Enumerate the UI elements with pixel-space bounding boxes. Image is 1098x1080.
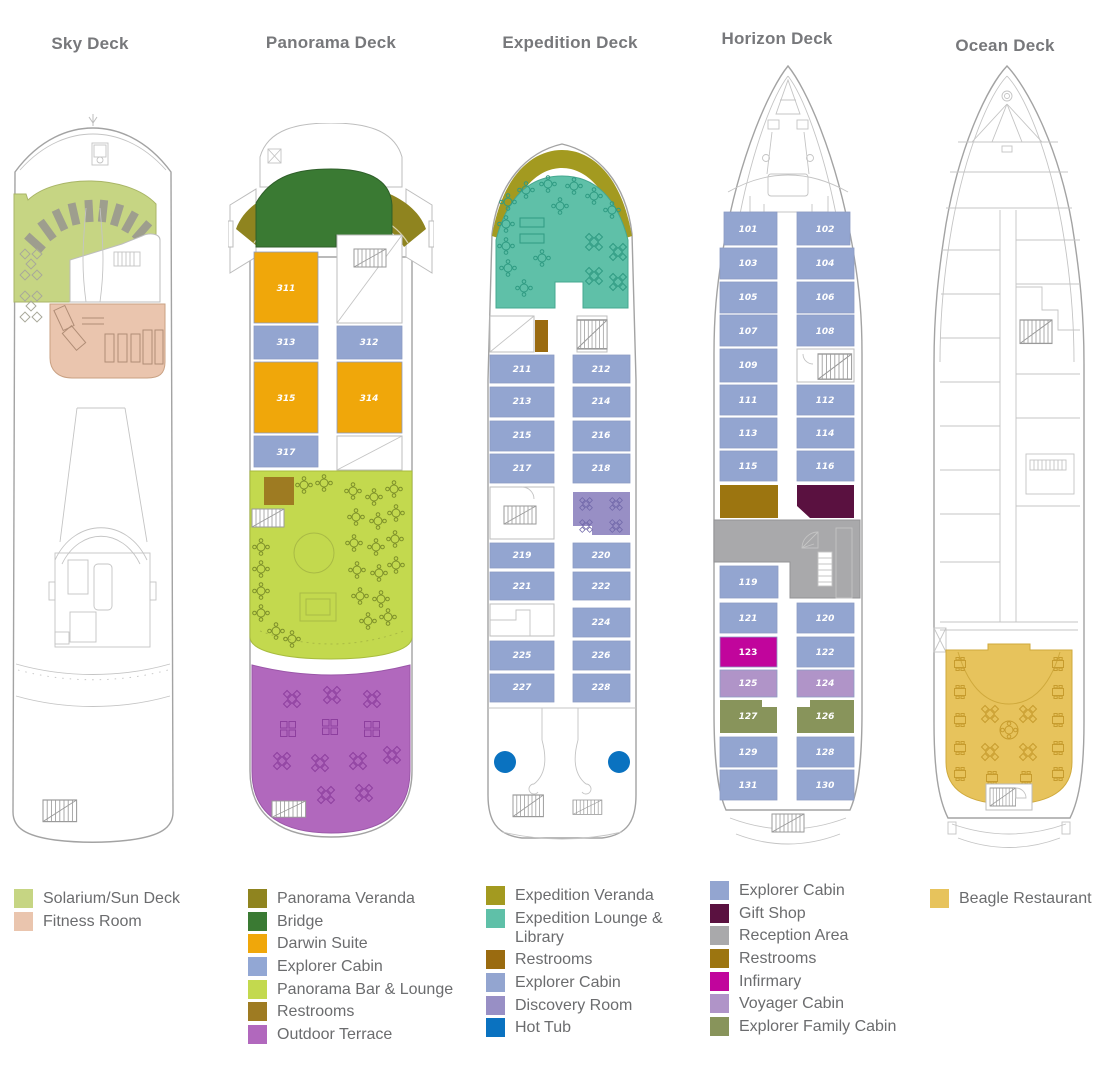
cabin-101-label: 101 xyxy=(739,225,758,235)
cabin-214-label: 214 xyxy=(592,397,611,407)
legend-label: Discovery Room xyxy=(515,996,632,1015)
stairs xyxy=(1020,320,1052,343)
legend-swatch xyxy=(248,957,267,976)
legend-item: Outdoor Terrace xyxy=(248,1025,453,1044)
legend-item: Voyager Cabin xyxy=(710,994,896,1013)
unnumbered-room xyxy=(490,604,554,636)
legend-swatch xyxy=(486,973,505,992)
legend-item: Beagle Restaurant xyxy=(930,889,1092,908)
legend-label: Restrooms xyxy=(515,950,592,969)
cabin-221-label: 221 xyxy=(513,582,532,592)
cabin-123-label: 123 xyxy=(739,648,758,658)
aft-stair-house xyxy=(986,784,1032,810)
legend-swatch xyxy=(710,994,729,1013)
cabin-220-label: 220 xyxy=(592,551,611,561)
legend-label: Bridge xyxy=(277,912,323,931)
legend-item: Explorer Cabin xyxy=(248,957,453,976)
cabin-314-label: 314 xyxy=(360,394,379,404)
legend-label: Beagle Restaurant xyxy=(959,889,1092,908)
legend-swatch xyxy=(248,889,267,908)
cabin-125-label: 125 xyxy=(739,679,758,689)
cabin-108-label: 108 xyxy=(816,327,835,337)
cabin-211-label: 211 xyxy=(513,365,532,375)
cabin-127-label: 127 xyxy=(739,712,759,722)
legend-label: Expedition Veranda xyxy=(515,886,654,905)
legend-swatch xyxy=(710,1017,729,1036)
horizon-deck-legend: Explorer Cabin Gift Shop Reception Area … xyxy=(710,881,896,1040)
cabin-124-label: 124 xyxy=(816,679,835,689)
stairs xyxy=(252,509,284,527)
cabin-311-label: 311 xyxy=(277,284,296,294)
legend-item: Explorer Family Cabin xyxy=(710,1017,896,1036)
legend-label: Hot Tub xyxy=(515,1018,571,1037)
restrooms-zone xyxy=(535,320,548,352)
cabin-224-label: 224 xyxy=(592,618,611,628)
sky-deck-plan xyxy=(10,112,176,847)
legend-label: Gift Shop xyxy=(739,904,806,923)
legend-item: Bridge xyxy=(248,912,453,931)
cabin-218-label: 218 xyxy=(592,464,611,474)
legend-swatch xyxy=(710,949,729,968)
sky-deck-legend: Solarium/Sun Deck Fitness Room xyxy=(14,889,180,934)
legend-swatch xyxy=(248,934,267,953)
legend-label: Explorer Cabin xyxy=(277,957,383,976)
legend-item: Restrooms xyxy=(248,1002,453,1021)
legend-swatch xyxy=(710,972,729,991)
cabin-120-label: 120 xyxy=(816,614,835,624)
cabin-317-label: 317 xyxy=(277,448,297,458)
cabin-104-label: 104 xyxy=(816,259,835,269)
legend-swatch xyxy=(486,1018,505,1037)
legend-label: Fitness Room xyxy=(43,912,142,931)
cabin-114-label: 114 xyxy=(816,429,835,439)
expedition-deck-plan: 211 213 215 217 219 221 225 227 212 214 … xyxy=(482,140,642,852)
legend-item: Explorer Cabin xyxy=(710,881,896,900)
legend-swatch xyxy=(710,926,729,945)
cabin-228-label: 228 xyxy=(592,683,611,693)
panorama-deck-legend: Panorama Veranda Bridge Darwin Suite Exp… xyxy=(248,889,453,1048)
legend-swatch xyxy=(248,1002,267,1021)
restrooms-zone xyxy=(720,485,778,518)
cabin-102-label: 102 xyxy=(816,225,835,235)
deck-title-sky: Sky Deck xyxy=(51,34,128,54)
legend-swatch xyxy=(486,886,505,905)
cabin-128-label: 128 xyxy=(816,748,835,758)
cabin-131-label: 131 xyxy=(739,781,758,791)
legend-swatch xyxy=(486,950,505,969)
ocean-deck-plan xyxy=(930,62,1088,874)
legend-item: Darwin Suite xyxy=(248,934,453,953)
cabin-315-label: 315 xyxy=(277,394,296,404)
cabin-122-label: 122 xyxy=(816,648,835,658)
stairwell-room xyxy=(337,235,402,323)
legend-label: Reception Area xyxy=(739,926,848,945)
deck-plan-page: Sky Deck Panorama Deck Expedition Deck H… xyxy=(0,0,1098,1080)
legend-swatch xyxy=(248,912,267,931)
legend-swatch xyxy=(14,889,33,908)
legend-swatch xyxy=(248,1025,267,1044)
legend-swatch xyxy=(486,909,505,928)
cabin-215-label: 215 xyxy=(513,431,532,441)
hot-tub xyxy=(608,751,630,773)
stairs xyxy=(43,800,77,822)
legend-label: Outdoor Terrace xyxy=(277,1025,392,1044)
legend-label: Panorama Bar & Lounge xyxy=(277,980,453,999)
legend-swatch xyxy=(710,904,729,923)
expedition-deck-legend: Expedition Veranda Expedition Lounge & L… xyxy=(486,886,665,1041)
legend-item: Gift Shop xyxy=(710,904,896,923)
legend-item: Discovery Room xyxy=(486,996,665,1015)
cabin-225-label: 225 xyxy=(513,651,532,661)
legend-item: Solarium/Sun Deck xyxy=(14,889,180,908)
stairwell xyxy=(797,349,854,382)
legend-label: Infirmary xyxy=(739,972,801,991)
cabin-312-label: 312 xyxy=(360,338,379,348)
cabin-115-label: 115 xyxy=(739,462,758,472)
legend-item: Infirmary xyxy=(710,972,896,991)
cabin-105-label: 105 xyxy=(739,293,758,303)
legend-label: Explorer Cabin xyxy=(515,973,621,992)
legend-swatch xyxy=(248,980,267,999)
legend-item: Expedition Veranda xyxy=(486,886,665,905)
cabin-216-label: 216 xyxy=(592,431,611,441)
legend-item: Fitness Room xyxy=(14,912,180,931)
cabin-217-label: 217 xyxy=(513,464,533,474)
legend-item: Restrooms xyxy=(486,950,665,969)
cabin-121-label: 121 xyxy=(739,614,758,624)
legend-label: Solarium/Sun Deck xyxy=(43,889,180,908)
legend-item: Expedition Lounge & Library xyxy=(486,909,665,947)
ocean-deck-legend: Beagle Restaurant xyxy=(930,889,1092,912)
legend-label: Explorer Cabin xyxy=(739,881,845,900)
cabin-112-label: 112 xyxy=(816,396,835,406)
deck-title-expedition: Expedition Deck xyxy=(502,33,637,53)
legend-swatch xyxy=(14,912,33,931)
cabin-119-label: 119 xyxy=(739,578,758,588)
cabin-109-label: 109 xyxy=(739,361,758,371)
legend-label: Restrooms xyxy=(739,949,816,968)
legend-swatch xyxy=(930,889,949,908)
cabin-116-label: 116 xyxy=(816,462,835,472)
legend-label: Panorama Veranda xyxy=(277,889,415,908)
legend-item: Panorama Bar & Lounge xyxy=(248,980,453,999)
legend-label: Voyager Cabin xyxy=(739,994,844,1013)
cabin-222-label: 222 xyxy=(592,582,611,592)
hot-tub xyxy=(494,751,516,773)
cabin-126-label: 126 xyxy=(816,712,835,722)
fitness-room-zone xyxy=(50,304,165,378)
deck-title-horizon: Horizon Deck xyxy=(721,29,832,49)
cabin-212-label: 212 xyxy=(592,365,611,375)
legend-label: Explorer Family Cabin xyxy=(739,1017,896,1036)
stern-platform xyxy=(948,822,1070,848)
cabin-227-label: 227 xyxy=(513,683,533,693)
legend-label: Restrooms xyxy=(277,1002,354,1021)
stairs xyxy=(272,801,306,817)
legend-label: Expedition Lounge & Library xyxy=(515,909,665,947)
panorama-deck-plan: 311 313 315 317 312 314 xyxy=(228,123,434,845)
stair-lobby xyxy=(490,487,554,539)
cabin-219-label: 219 xyxy=(513,551,532,561)
cabin-113-label: 113 xyxy=(739,429,758,439)
cabin-111-label: 111 xyxy=(739,396,758,406)
cabin-226-label: 226 xyxy=(592,651,611,661)
cabin-129-label: 129 xyxy=(739,748,758,758)
legend-item: Reception Area xyxy=(710,926,896,945)
restrooms-zone xyxy=(264,477,294,505)
cabin-313-label: 313 xyxy=(277,338,296,348)
legend-item: Hot Tub xyxy=(486,1018,665,1037)
legend-label: Darwin Suite xyxy=(277,934,368,953)
legend-swatch xyxy=(486,996,505,1015)
cabin-106-label: 106 xyxy=(816,293,835,303)
deck-title-panorama: Panorama Deck xyxy=(266,33,396,53)
legend-swatch xyxy=(710,881,729,900)
cabin-130-label: 130 xyxy=(816,781,835,791)
stairs xyxy=(772,814,804,832)
cabin-107-label: 107 xyxy=(739,327,759,337)
mast xyxy=(89,114,97,126)
legend-item: Restrooms xyxy=(710,949,896,968)
cabin-213-label: 213 xyxy=(513,397,532,407)
legend-item: Panorama Veranda xyxy=(248,889,453,908)
legend-item: Explorer Cabin xyxy=(486,973,665,992)
gift-shop-zone xyxy=(797,485,854,518)
deck-title-ocean: Ocean Deck xyxy=(955,36,1054,56)
horizon-deck-plan: 101 103 105 107 109 111 113 115 119 121 … xyxy=(710,62,866,874)
aft-stair-room xyxy=(337,436,402,470)
cabin-103-label: 103 xyxy=(739,259,758,269)
